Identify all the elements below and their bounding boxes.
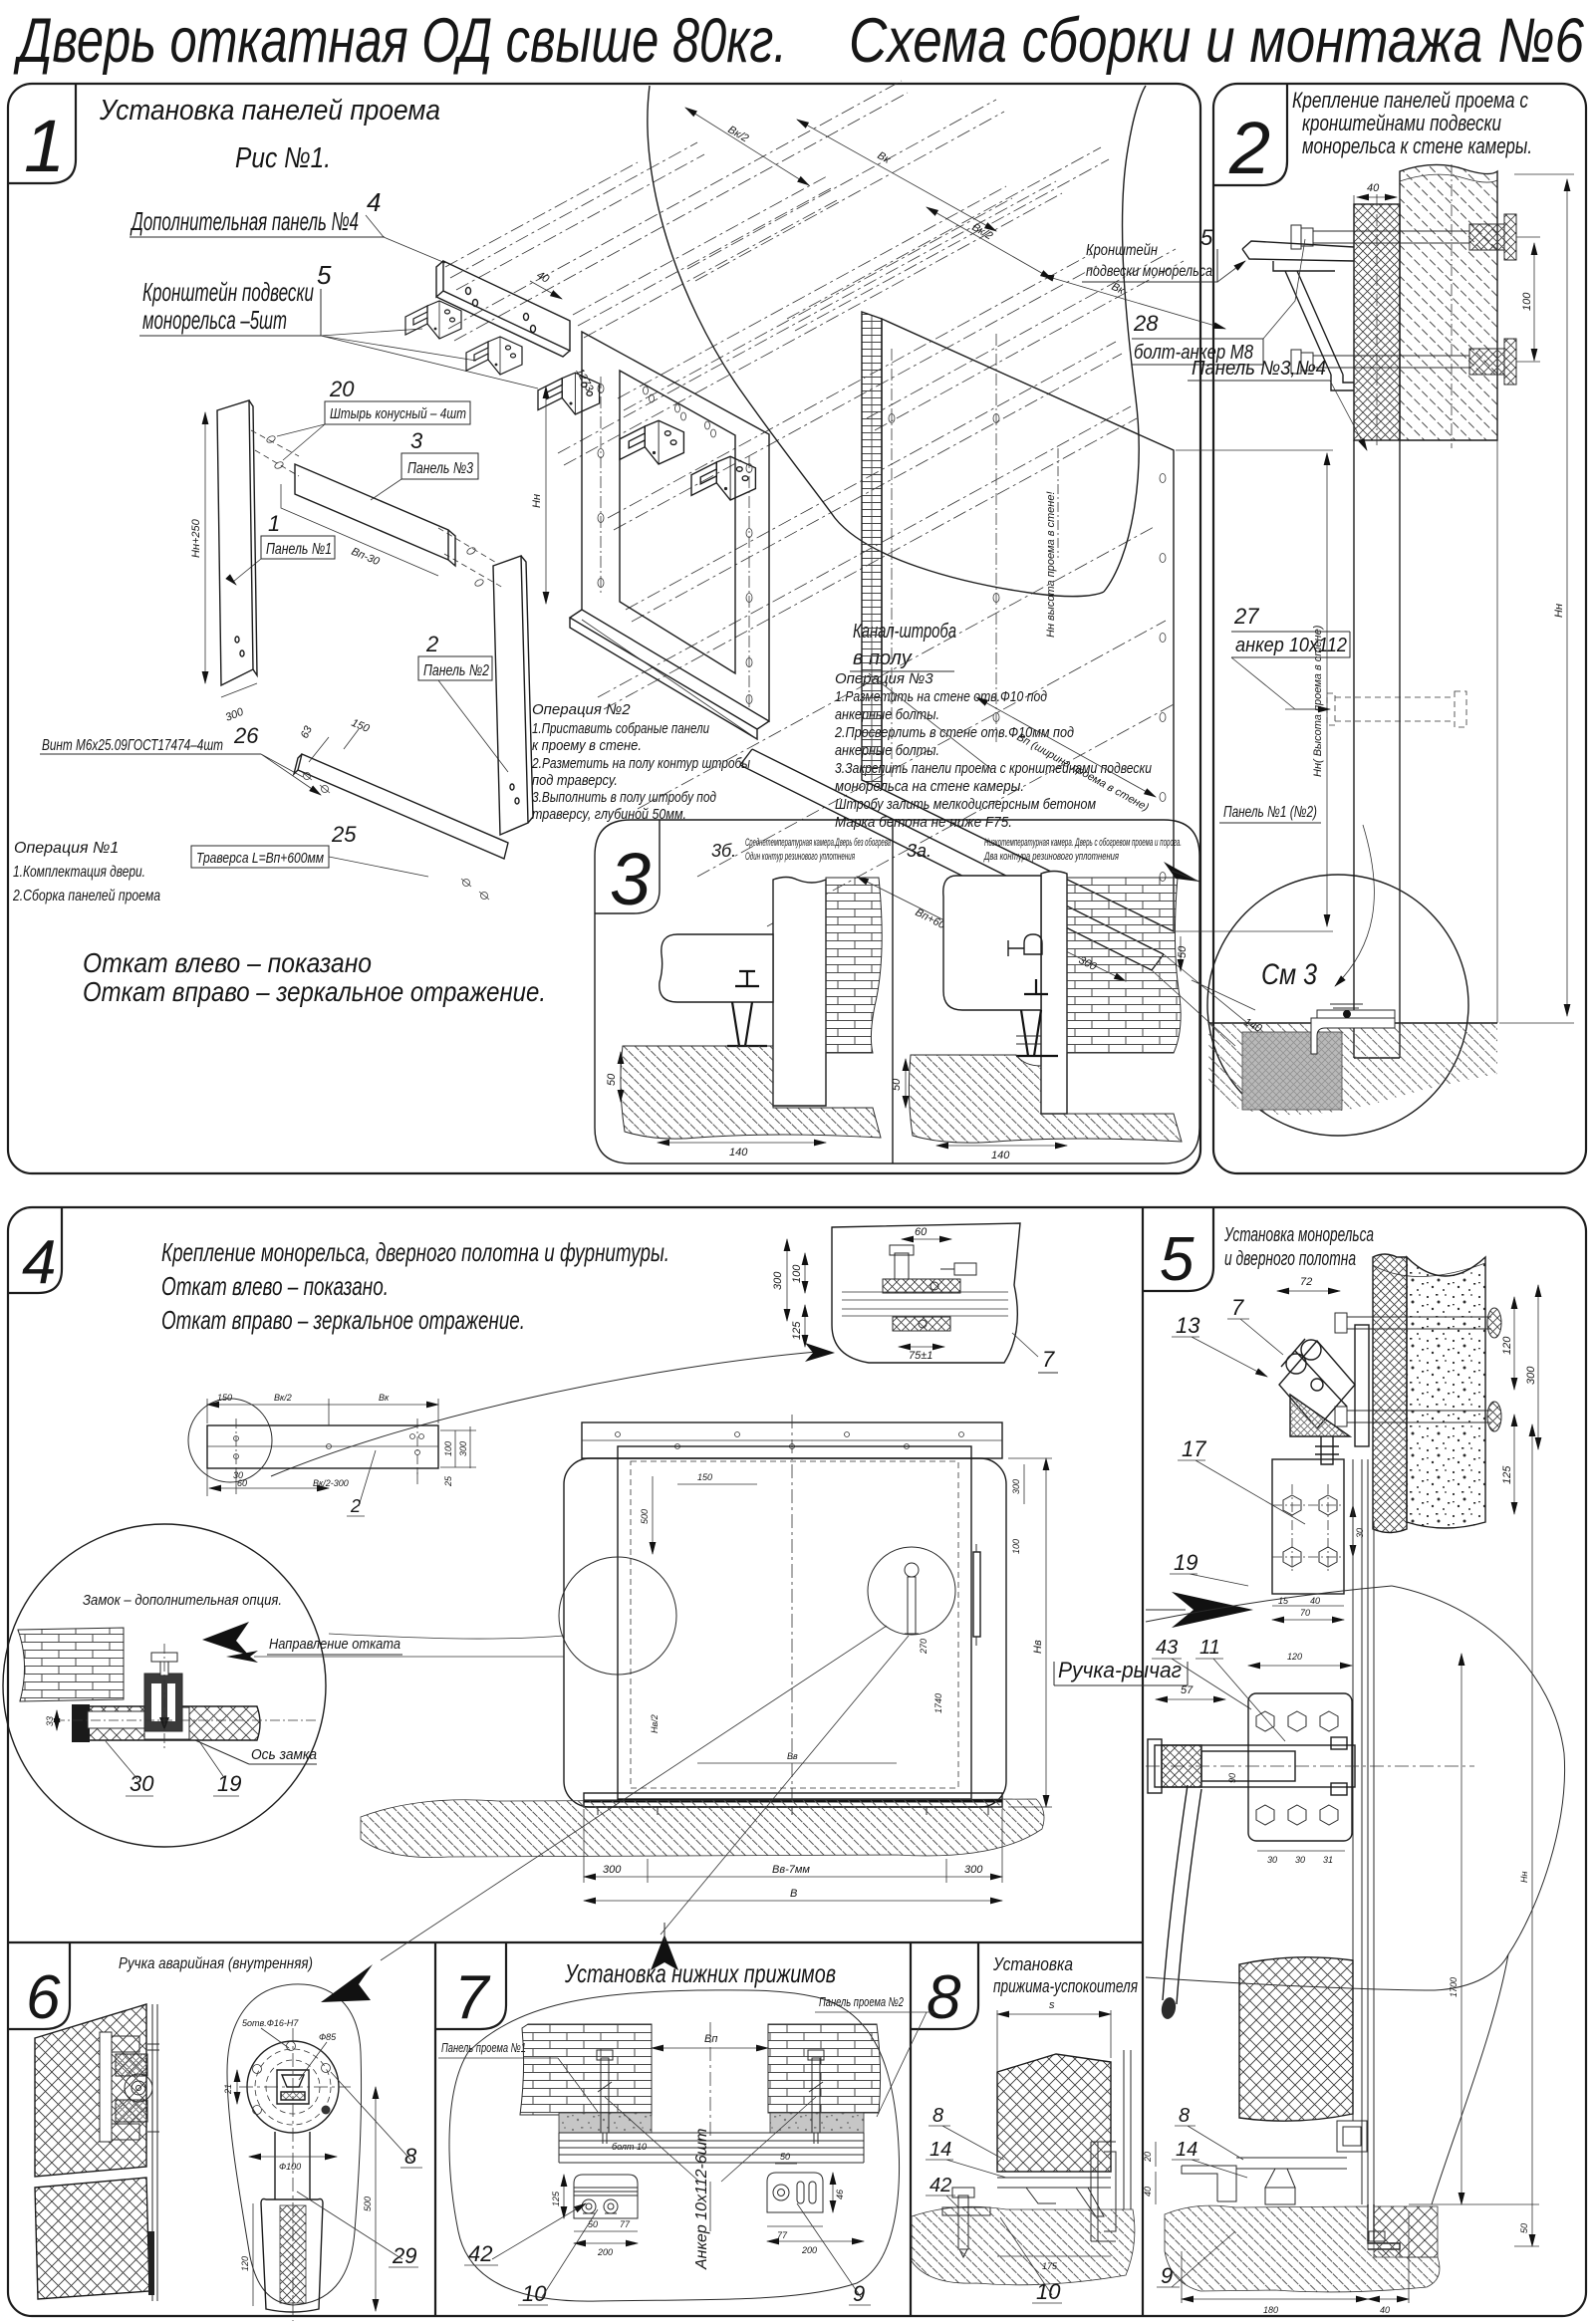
svg-text:Панель №2: Панель №2 <box>423 662 489 679</box>
svg-text:100: 100 <box>791 1264 803 1283</box>
svg-text:Откат влево – показано.: Откат влево – показано. <box>161 1271 389 1301</box>
svg-text:8: 8 <box>927 1963 961 2032</box>
svg-text:43: 43 <box>1156 1637 1178 1659</box>
svg-text:См 3: См 3 <box>1261 958 1317 991</box>
svg-text:300: 300 <box>458 1441 468 1456</box>
svg-text:150: 150 <box>697 1472 712 1482</box>
svg-text:50: 50 <box>891 1078 903 1091</box>
svg-text:Вп: Вп <box>704 2033 717 2045</box>
svg-text:2.Сборка панелей проема: 2.Сборка панелей проема <box>12 888 160 904</box>
svg-text:Ось замка: Ось замка <box>251 1746 317 1763</box>
svg-text:Вк/2-300: Вк/2-300 <box>313 1478 349 1488</box>
svg-text:50: 50 <box>588 2219 598 2229</box>
svg-text:1.Приставить собраные панели: 1.Приставить собраные панели <box>532 720 710 737</box>
svg-text:3: 3 <box>410 428 423 453</box>
svg-text:25: 25 <box>443 1475 453 1487</box>
svg-text:подвески монорельса: подвески монорельса <box>1086 263 1212 280</box>
svg-text:46: 46 <box>835 2190 845 2199</box>
svg-text:Установка: Установка <box>992 1954 1073 1974</box>
svg-text:21: 21 <box>223 2084 233 2095</box>
svg-text:72: 72 <box>1300 1276 1312 1288</box>
svg-text:120: 120 <box>240 2256 250 2271</box>
svg-text:40: 40 <box>1310 1596 1320 1606</box>
svg-text:4: 4 <box>22 1228 56 1297</box>
svg-text:монорельса к стене камеры.: монорельса к стене камеры. <box>1302 133 1532 158</box>
svg-text:5: 5 <box>317 260 332 290</box>
svg-text:60: 60 <box>915 1226 928 1238</box>
svg-text:3.Выполнить в полу штробу под: 3.Выполнить в полу штробу под <box>532 789 716 806</box>
svg-text:Замок – дополнительная опция.: Замок – дополнительная опция. <box>83 1592 282 1609</box>
svg-text:57: 57 <box>1181 1684 1194 1696</box>
svg-text:Вв-7мм: Вв-7мм <box>772 1864 810 1876</box>
svg-text:100: 100 <box>443 1441 453 1456</box>
svg-text:140: 140 <box>729 1147 748 1159</box>
svg-text:Нв/2: Нв/2 <box>650 1714 660 1733</box>
svg-text:Крепление монорельса, дверного: Крепление монорельса, дверного полотна и… <box>161 1237 669 1267</box>
svg-text:Панель проема №1: Панель проема №1 <box>441 2040 526 2055</box>
svg-text:42: 42 <box>930 2175 951 2196</box>
svg-text:9: 9 <box>1161 2263 1173 2288</box>
svg-text:1700: 1700 <box>1449 1977 1459 1997</box>
svg-text:300: 300 <box>1525 1366 1537 1385</box>
svg-text:120: 120 <box>1287 1652 1302 1662</box>
svg-text:40: 40 <box>1367 182 1380 194</box>
svg-text:Вв: Вв <box>787 1751 798 1761</box>
svg-text:Нн: Нн <box>531 494 543 508</box>
svg-text:140: 140 <box>991 1150 1010 1162</box>
svg-text:Нн высота проема в стене!: Нн высота проема в стене! <box>1045 491 1057 638</box>
svg-text:к проему в стене.: к проему в стене. <box>532 737 642 754</box>
svg-text:Вк/2: Вк/2 <box>274 1393 292 1403</box>
svg-text:Дополнительная панель №4: Дополнительная панель №4 <box>130 206 359 236</box>
svg-text:180: 180 <box>1263 2305 1278 2315</box>
svg-text:Ф85: Ф85 <box>319 2032 337 2042</box>
svg-text:50: 50 <box>1177 945 1189 958</box>
svg-text:8: 8 <box>404 2144 417 2169</box>
svg-text:100: 100 <box>1011 1539 1021 1554</box>
svg-text:Нн: Нн <box>1519 1872 1529 1883</box>
svg-text:2: 2 <box>1228 107 1270 189</box>
svg-text:77: 77 <box>620 2219 631 2229</box>
svg-text:26: 26 <box>233 723 259 748</box>
svg-text:s: s <box>1049 1999 1055 2011</box>
svg-text:33: 33 <box>45 1716 55 1726</box>
svg-text:13: 13 <box>1176 1313 1200 1338</box>
svg-text:Винт М6х25.09ГОСТ17474–4шт: Винт М6х25.09ГОСТ17474–4шт <box>42 737 223 754</box>
svg-text:20: 20 <box>329 377 355 401</box>
svg-text:Крепление панелей проема с: Крепление панелей проема с <box>1292 88 1528 113</box>
svg-text:2.Разметить на полу контур штр: 2.Разметить на полу контур штробы <box>531 755 750 772</box>
svg-text:300: 300 <box>603 1864 622 1876</box>
svg-text:9: 9 <box>853 2281 865 2306</box>
svg-text:70: 70 <box>1300 1608 1310 1618</box>
svg-text:50: 50 <box>780 2152 790 2162</box>
svg-text:125: 125 <box>1501 1465 1513 1484</box>
svg-text:175: 175 <box>1042 2261 1058 2271</box>
svg-text:10: 10 <box>1036 2279 1061 2304</box>
svg-text:Кронштейн подвески: Кронштейн подвески <box>142 277 314 307</box>
svg-text:17: 17 <box>1182 1436 1206 1461</box>
svg-text:1: 1 <box>268 511 280 536</box>
svg-text:Панель №3: Панель №3 <box>407 460 473 477</box>
svg-text:Нн: Нн <box>1553 604 1565 618</box>
svg-text:150: 150 <box>217 1393 232 1403</box>
svg-text:Низкотемпературная камера. Две: Низкотемпературная камера. Дверь с обогр… <box>984 837 1182 849</box>
svg-text:Панель №3,№4: Панель №3,№4 <box>1192 358 1326 380</box>
svg-text:кронштейнами подвески: кронштейнами подвески <box>1302 111 1501 135</box>
svg-text:7: 7 <box>454 1963 491 2032</box>
svg-text:19: 19 <box>217 1771 241 1796</box>
svg-text:30: 30 <box>1267 1855 1277 1865</box>
svg-text:Операция №3: Операция №3 <box>835 670 933 687</box>
svg-text:200: 200 <box>801 2245 817 2255</box>
svg-text:Два контура резинового уплотне: Два контура резинового уплотнения <box>983 851 1119 863</box>
svg-text:50: 50 <box>606 1073 618 1086</box>
svg-text:8: 8 <box>1179 2105 1190 2127</box>
svg-text:19: 19 <box>1174 1550 1197 1575</box>
svg-text:3б.: 3б. <box>711 841 736 861</box>
svg-text:40: 40 <box>1143 2187 1153 2196</box>
svg-text:2: 2 <box>425 632 438 656</box>
svg-text:31: 31 <box>1323 1855 1333 1865</box>
svg-text:болт 10: болт 10 <box>612 2142 647 2152</box>
svg-text:100: 100 <box>1521 292 1533 311</box>
svg-text:500: 500 <box>363 2196 373 2211</box>
svg-text:14: 14 <box>930 2139 951 2161</box>
svg-text:300: 300 <box>1011 1479 1021 1494</box>
svg-text:Один контур резинового уплотне: Один контур резинового уплотнения <box>745 851 855 863</box>
svg-text:Схема сборки и монтажа №6: Схема сборки и монтажа №6 <box>849 6 1585 76</box>
svg-text:29: 29 <box>392 2243 416 2268</box>
svg-text:прижима-успокоителя: прижима-успокоителя <box>993 1976 1138 1996</box>
svg-text:анкерные болты.: анкерные болты. <box>835 706 939 723</box>
svg-text:Панель №1 (№2): Панель №1 (№2) <box>1223 804 1317 821</box>
svg-text:300: 300 <box>772 1271 784 1290</box>
svg-text:28: 28 <box>1133 311 1159 336</box>
svg-text:Ф100: Ф100 <box>279 2162 301 2172</box>
svg-text:20: 20 <box>1143 2152 1153 2163</box>
svg-text:анкерные болты.: анкерные болты. <box>835 742 939 759</box>
svg-text:3: 3 <box>610 838 651 920</box>
svg-text:Траверса L=Вп+600мм: Траверса L=Вп+600мм <box>196 850 324 867</box>
svg-text:Нн+250: Нн+250 <box>190 518 202 558</box>
svg-text:125: 125 <box>791 1321 803 1340</box>
svg-text:Ручка-рычаг: Ручка-рычаг <box>1058 1658 1182 1682</box>
svg-text:Кронштейн: Кронштейн <box>1086 242 1158 259</box>
svg-text:Установка панелей проема: Установка панелей проема <box>99 95 440 127</box>
svg-text:90: 90 <box>1227 1773 1237 1783</box>
svg-text:125: 125 <box>551 2191 561 2206</box>
svg-text:Рис №1.: Рис №1. <box>235 142 331 174</box>
svg-text:50: 50 <box>1519 2223 1529 2233</box>
svg-text:25: 25 <box>331 822 357 847</box>
svg-text:под траверсу.: под траверсу. <box>532 772 618 789</box>
svg-text:Вк: Вк <box>379 1393 390 1403</box>
svg-text:Марка бетона не ниже F75.: Марка бетона не ниже F75. <box>835 814 1012 831</box>
svg-text:3а.: 3а. <box>907 841 931 861</box>
svg-text:30: 30 <box>1355 1528 1365 1538</box>
svg-text:Операция №2: Операция №2 <box>532 701 631 718</box>
svg-text:Панель №1: Панель №1 <box>266 541 332 558</box>
svg-text:11: 11 <box>1199 1637 1220 1659</box>
svg-text:200: 200 <box>597 2247 613 2257</box>
svg-text:120: 120 <box>1501 1336 1513 1355</box>
svg-text:14: 14 <box>1176 2139 1197 2161</box>
svg-text:30: 30 <box>130 1771 154 1796</box>
svg-text:Откат вправо – зеркальное отра: Откат вправо – зеркальное отражение. <box>161 1305 525 1335</box>
svg-text:Установка монорельса: Установка монорельса <box>1223 1224 1374 1246</box>
svg-text:8: 8 <box>932 2105 943 2127</box>
svg-text:1.Комплектация двери.: 1.Комплектация двери. <box>13 864 145 881</box>
svg-text:1: 1 <box>24 105 65 187</box>
svg-text:Установка нижних прижимов: Установка нижних прижимов <box>564 1958 836 1988</box>
svg-text:5: 5 <box>1160 1225 1195 1294</box>
svg-text:7: 7 <box>1231 1295 1244 1320</box>
svg-text:7: 7 <box>1042 1347 1055 1372</box>
svg-text:Откат вправо – зеркальное отра: Откат вправо – зеркальное отражение. <box>83 976 546 1007</box>
svg-text:27: 27 <box>1233 604 1259 629</box>
svg-text:40: 40 <box>1380 2305 1390 2315</box>
svg-text:Дверь откатная ОД свыше 80кг.: Дверь откатная ОД свыше 80кг. <box>13 6 787 76</box>
svg-text:монорельса –5шт: монорельса –5шт <box>142 305 287 335</box>
svg-text:42: 42 <box>468 2241 492 2266</box>
svg-text:Операция №1: Операция №1 <box>14 840 119 857</box>
svg-text:В: В <box>790 1888 797 1900</box>
svg-text:75±1: 75±1 <box>909 1350 932 1362</box>
svg-text:77: 77 <box>777 2230 788 2240</box>
svg-text:4: 4 <box>367 187 381 217</box>
svg-text:10: 10 <box>522 2281 547 2306</box>
svg-text:5отв.Ф16-Н7: 5отв.Ф16-Н7 <box>242 2018 299 2028</box>
svg-text:270: 270 <box>919 1639 929 1655</box>
svg-text:Штырь конусный – 4шт: Штырь конусный – 4шт <box>330 405 466 422</box>
svg-text:500: 500 <box>640 1509 650 1524</box>
svg-text:Ручка аварийная (внутренняя): Ручка аварийная (внутренняя) <box>119 1955 313 1972</box>
svg-text:Откат влево – показано: Откат влево – показано <box>83 947 372 978</box>
svg-text:30: 30 <box>1295 1855 1305 1865</box>
svg-text:5: 5 <box>1200 225 1213 250</box>
svg-text:Направление отката: Направление отката <box>269 1636 400 1653</box>
svg-text:1740: 1740 <box>933 1693 943 1713</box>
svg-text:300: 300 <box>964 1864 983 1876</box>
svg-text:6: 6 <box>26 1963 61 2032</box>
svg-text:Анкер 10х112-6шт: Анкер 10х112-6шт <box>693 2129 710 2270</box>
svg-text:Панель проема №2: Панель проема №2 <box>819 1994 905 2009</box>
svg-text:60: 60 <box>237 1478 247 1488</box>
svg-text:Среднетемпературная камера.Две: Среднетемпературная камера.Дверь без обо… <box>745 837 891 849</box>
svg-text:анкер 10х112: анкер 10х112 <box>1235 635 1347 656</box>
svg-text:Нв: Нв <box>1032 1640 1044 1654</box>
svg-text:и дверного полотна: и дверного полотна <box>1224 1248 1356 1270</box>
svg-text:траверсу, глубиной 50мм.: траверсу, глубиной 50мм. <box>532 806 686 823</box>
